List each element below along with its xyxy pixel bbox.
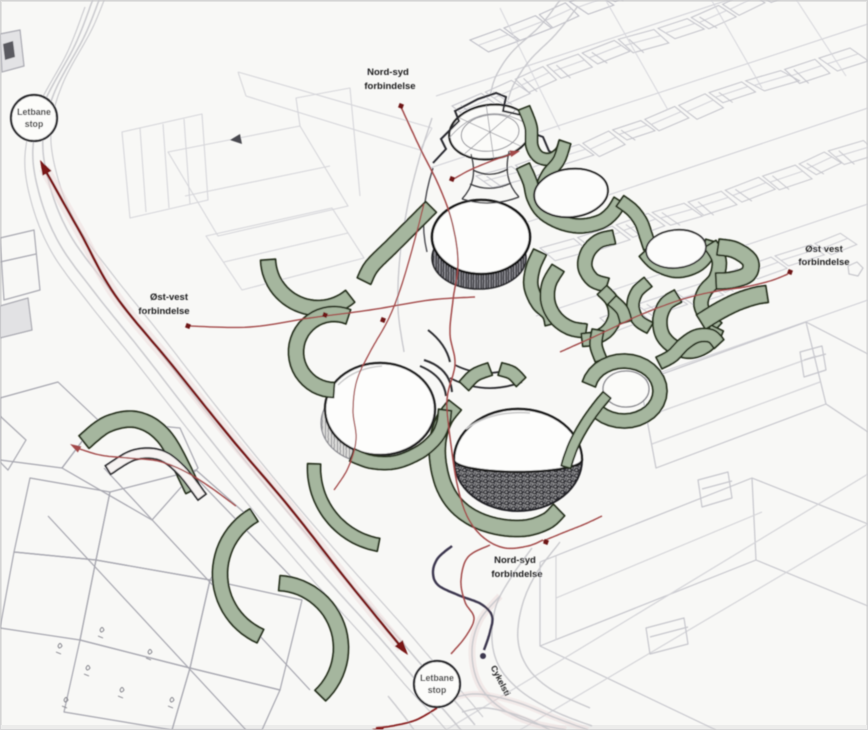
svg-text:stop: stop [25,119,44,129]
svg-text:Letbane: Letbane [17,107,51,117]
svg-text:stop: stop [428,685,447,695]
svg-text:forbindelse: forbindelse [138,306,189,317]
svg-text:Nord-syd: Nord-syd [367,67,409,78]
svg-text:forbindelse: forbindelse [364,81,415,92]
svg-text:Øst-vest: Øst-vest [150,292,189,303]
svg-text:forbindelse: forbindelse [798,257,849,268]
svg-text:forbindelse: forbindelse [491,569,542,580]
svg-text:Øst vest: Øst vest [805,244,843,255]
svg-text:Letbane: Letbane [420,673,454,683]
svg-text:Nord-syd: Nord-syd [494,555,536,566]
